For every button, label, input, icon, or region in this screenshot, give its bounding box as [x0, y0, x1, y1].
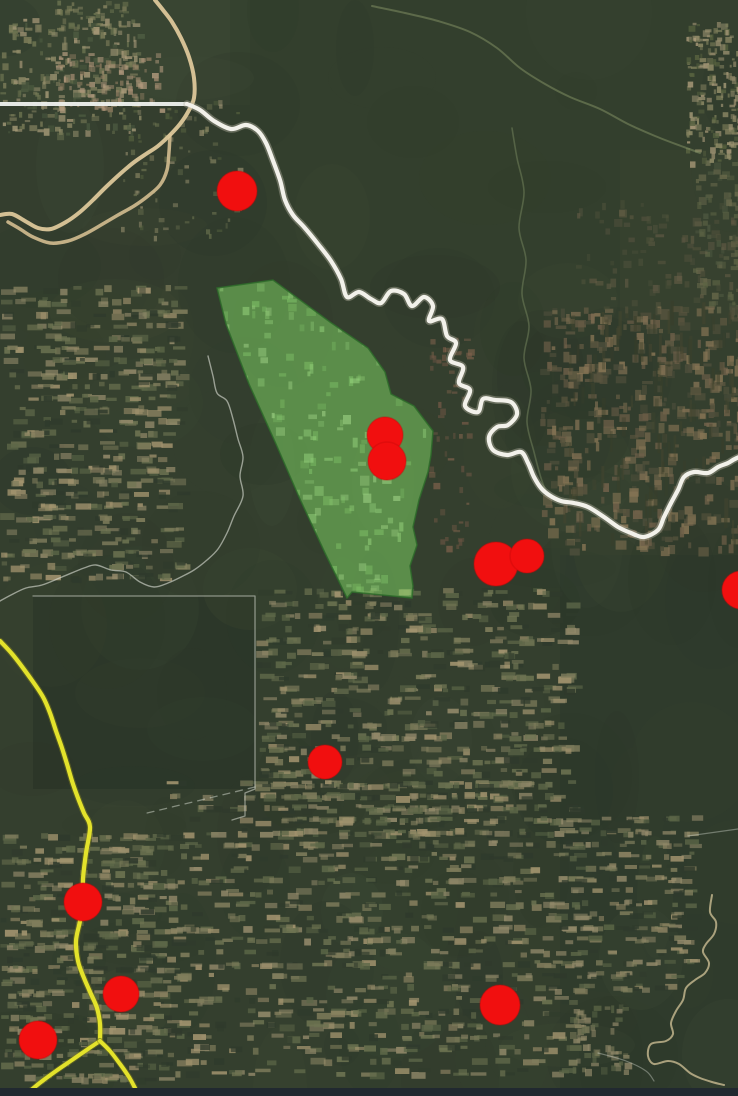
red-alert-marker[interactable] — [64, 883, 102, 921]
red-alert-marker[interactable] — [217, 171, 257, 211]
red-alert-marker[interactable] — [510, 539, 544, 573]
satellite-map[interactable] — [0, 0, 738, 1096]
map-viewport[interactable] — [0, 0, 738, 1096]
red-alert-marker[interactable] — [19, 1021, 57, 1059]
red-alert-marker[interactable] — [308, 745, 342, 779]
bottom-edge-bar — [0, 1088, 738, 1096]
red-alert-marker[interactable] — [368, 442, 406, 480]
red-alert-marker[interactable] — [480, 985, 520, 1025]
red-alert-marker[interactable] — [103, 976, 139, 1012]
